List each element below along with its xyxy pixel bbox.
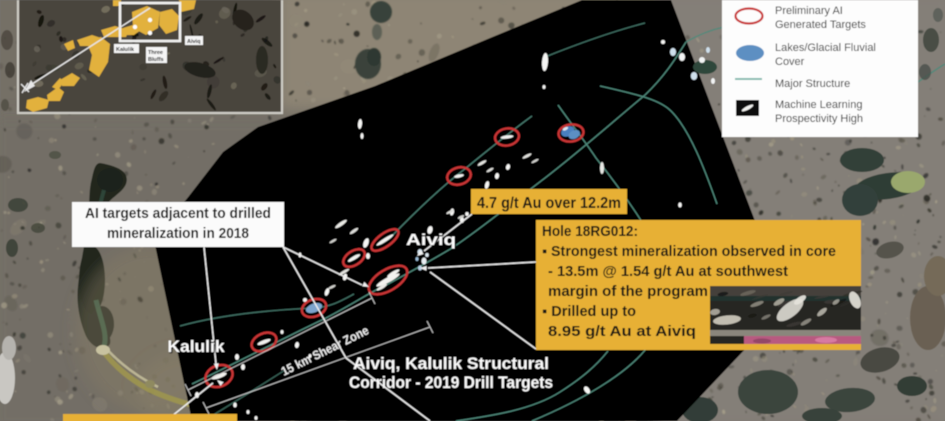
- svg-text:Lakes/Glacial Fluvial: Lakes/Glacial Fluvial: [775, 42, 876, 54]
- svg-text:Generated Targets: Generated Targets: [775, 19, 866, 31]
- svg-text:▪ Drilled up to: ▪ Drilled up to: [542, 304, 636, 320]
- svg-text:Three: Three: [148, 50, 163, 56]
- svg-text:AI targets adjacent to drilled: AI targets adjacent to drilled: [85, 205, 271, 222]
- svg-text:Major Structure: Major Structure: [775, 78, 850, 90]
- svg-text:8.95 g/t Au at Aiviq: 8.95 g/t Au at Aiviq: [548, 324, 696, 340]
- svg-text:Machine Learning: Machine Learning: [775, 99, 862, 111]
- svg-text:Bluffs: Bluffs: [148, 57, 164, 63]
- svg-text:Cover: Cover: [775, 56, 805, 68]
- svg-text:Prospectivity High: Prospectivity High: [775, 113, 863, 125]
- svg-text:Preliminary AI: Preliminary AI: [775, 5, 843, 17]
- svg-text:Aiviq: Aiviq: [406, 232, 456, 249]
- svg-text:Corridor - 2019 Drill Targets: Corridor - 2019 Drill Targets: [349, 374, 553, 392]
- svg-text:mineralization in 2018: mineralization in 2018: [107, 225, 249, 242]
- svg-text:Aiviq, Kalulik Structural: Aiviq, Kalulik Structural: [353, 355, 549, 373]
- svg-text:Hole 18RG012:: Hole 18RG012:: [542, 224, 638, 240]
- svg-text:Kalulik: Kalulik: [168, 337, 226, 356]
- svg-text:margin of the program: margin of the program: [548, 284, 708, 300]
- svg-text:Kalulik: Kalulik: [116, 47, 135, 53]
- svg-text:Aiviq: Aiviq: [187, 39, 200, 45]
- svg-text:4.7 g/t Au over 12.2m: 4.7 g/t Au over 12.2m: [477, 195, 621, 212]
- svg-text:- 13.5m @ 1.54 g/t Au at south: - 13.5m @ 1.54 g/t Au at southwest: [548, 264, 788, 280]
- svg-text:▪ Strongest mineralization obs: ▪ Strongest mineralization observed in c…: [542, 244, 836, 260]
